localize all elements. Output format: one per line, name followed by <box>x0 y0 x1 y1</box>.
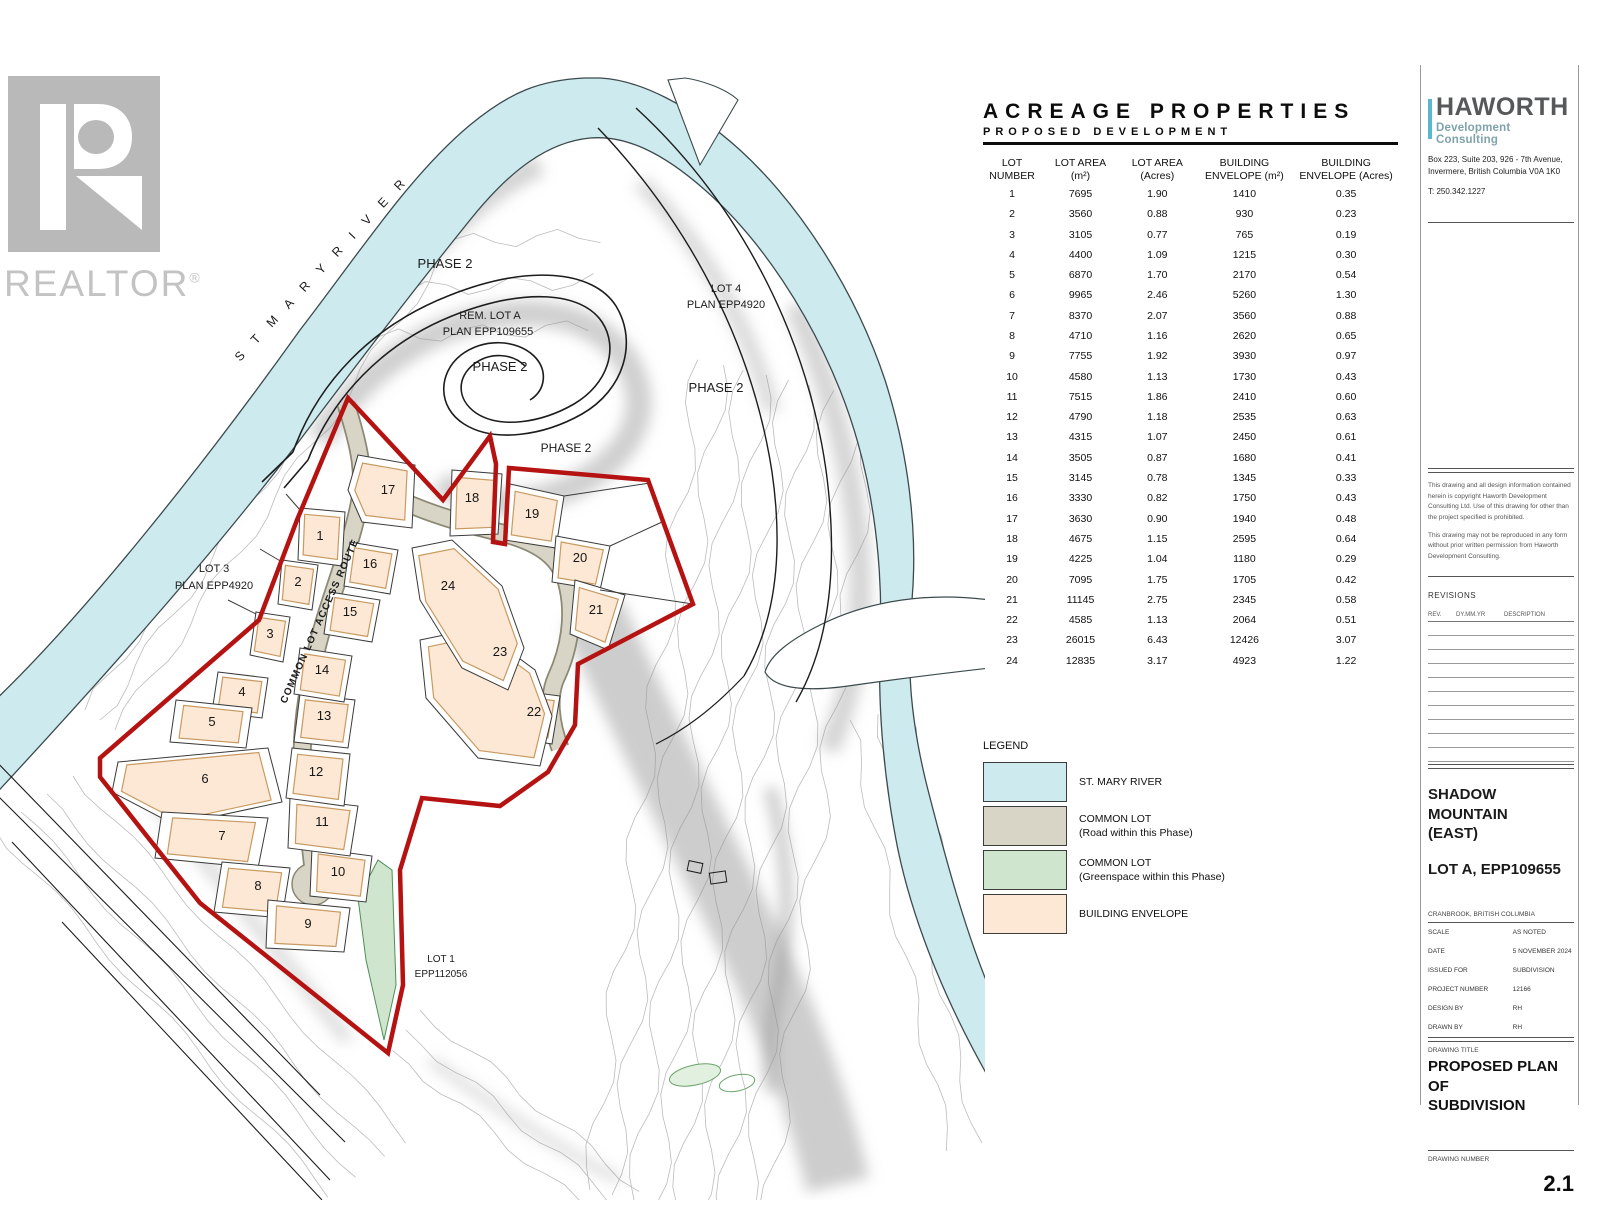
lot-number-label: 4 <box>238 684 245 699</box>
lot-table-row: 847101.1626200.65 <box>983 326 1398 346</box>
lot-table-cell: 1730 <box>1195 366 1295 386</box>
lot-table-body: 176951.9014100.35235600.889300.23331050.… <box>983 184 1398 671</box>
lot-table-cell: 1215 <box>1195 245 1295 265</box>
lot-table-cell: 2.46 <box>1120 285 1195 305</box>
lot-table-cell: 9 <box>983 346 1041 366</box>
lot-table-cell: 5 <box>983 265 1041 285</box>
revision-blank-row <box>1428 650 1574 664</box>
lot-table-cell: 4315 <box>1041 427 1120 447</box>
lot-table-cell: 2 <box>983 204 1041 224</box>
revision-blank-row <box>1428 734 1574 748</box>
revision-blank-row <box>1428 636 1574 650</box>
lot-number-label: 1 <box>316 528 323 543</box>
drawing-title: PROPOSED PLAN OF SUBDIVISION <box>1428 1057 1574 1116</box>
legend-item: BUILDING ENVELOPE <box>983 894 1243 934</box>
lot-table-row: 568701.7021700.54 <box>983 265 1398 285</box>
lot-table-cell: 21 <box>983 590 1041 610</box>
firm-name: HAWORTH <box>1436 95 1574 120</box>
map-label: LOT 1 <box>427 954 455 965</box>
legend-swatch <box>983 806 1067 846</box>
column-header: LOT AREA(Acres) <box>1120 157 1195 184</box>
map-label: EPP112056 <box>415 969 468 980</box>
lot-table-cell: 1.07 <box>1120 427 1195 447</box>
lot-table-cell: 2410 <box>1195 387 1295 407</box>
lot-table-cell: 8 <box>983 326 1041 346</box>
lot-table-cell: 1.18 <box>1120 407 1195 427</box>
lot-table-cell: 3145 <box>1041 468 1120 488</box>
haworth-teal-bar <box>1428 99 1432 139</box>
lot-table-cell: 0.97 <box>1294 346 1398 366</box>
lot-table-cell: 4923 <box>1195 651 1295 671</box>
section-divider <box>1428 468 1574 473</box>
lot-table-cell: 3630 <box>1041 509 1120 529</box>
info-field-row: PROJECT NUMBER12166 <box>1428 980 1574 999</box>
lot-number-label: 13 <box>317 708 331 723</box>
legend-swatch <box>983 850 1067 890</box>
realtor-label: REALTOR® <box>4 263 192 305</box>
lot-table-cell: 1.13 <box>1120 610 1195 630</box>
lot-table-cell: 1940 <box>1195 509 1295 529</box>
legend-item: COMMON LOT(Greenspace within this Phase) <box>983 850 1243 890</box>
lot-table-cell: 2620 <box>1195 326 1295 346</box>
lot-table-cell: 4400 <box>1041 245 1120 265</box>
lot-table-cell: 7695 <box>1041 184 1120 204</box>
lot-table-cell: 0.23 <box>1294 204 1398 224</box>
legend-label: ST. MARY RIVER <box>1079 775 1162 789</box>
lot-table-cell: 0.48 <box>1294 509 1398 529</box>
revision-blank-row <box>1428 678 1574 692</box>
lot-table-cell: 0.61 <box>1294 427 1398 447</box>
lot-table-cell: 0.77 <box>1120 224 1195 244</box>
lot-number-label: 19 <box>525 506 539 521</box>
lot-table-cell: 1.86 <box>1120 387 1195 407</box>
copyright-note-2: This drawing may not be reproduced in an… <box>1428 531 1574 562</box>
lot-number-label: 16 <box>363 556 377 571</box>
legend-item: COMMON LOT(Road within this Phase) <box>983 806 1243 846</box>
lot-table-cell: 0.30 <box>1294 245 1398 265</box>
lot-table-cell: 1.15 <box>1120 529 1195 549</box>
lot-number-label: 17 <box>381 482 395 497</box>
lot-table-row: 1942251.0411800.29 <box>983 549 1398 569</box>
firm-phone: T: 250.342.1227 <box>1428 187 1574 196</box>
revision-blank-row <box>1428 664 1574 678</box>
drawing-title-label: DRAWING TITLE <box>1428 1047 1574 1054</box>
lot-table-cell: 0.19 <box>1294 224 1398 244</box>
realtor-r-logo <box>2 62 172 258</box>
lot-table-cell: 0.42 <box>1294 569 1398 589</box>
lot-table-row: 1045801.1317300.43 <box>983 366 1398 386</box>
lot-table-cell: 19 <box>983 549 1041 569</box>
lot-table-cell: 2.07 <box>1120 306 1195 326</box>
lot-number-label: 11 <box>315 814 329 829</box>
lot-table-cell: 3505 <box>1041 448 1120 468</box>
lot-table-cell: 8370 <box>1041 306 1120 326</box>
info-field-row: DRAWN BYRH <box>1428 1018 1574 1037</box>
lot-table-row: 783702.0735600.88 <box>983 306 1398 326</box>
legend-item: ST. MARY RIVER <box>983 762 1243 802</box>
lot-table-cell: 1.75 <box>1120 569 1195 589</box>
lot-table-cell: 0.35 <box>1294 184 1398 204</box>
lot-table-row: 1736300.9019400.48 <box>983 509 1398 529</box>
revision-blank-row <box>1428 706 1574 720</box>
legend-label: COMMON LOT(Greenspace within this Phase) <box>1079 856 1225 884</box>
lot-table-cell: 10 <box>983 366 1041 386</box>
lot-table-cell: 7755 <box>1041 346 1120 366</box>
lot-table-cell: 4675 <box>1041 529 1120 549</box>
lot-table-cell: 0.51 <box>1294 610 1398 630</box>
firm-address-line2: Invermere, British Columbia V0A 1K0 <box>1428 166 1574 177</box>
lot-number-label: 6 <box>201 771 208 786</box>
project-location: CRANBROOK, BRITISH COLUMBIA <box>1428 911 1574 918</box>
lot-table-cell: 17 <box>983 509 1041 529</box>
lot-table-cell: 22 <box>983 610 1041 630</box>
lot-number-label: 2 <box>294 574 301 589</box>
lot-table-row: 235600.889300.23 <box>983 204 1398 224</box>
map-label: PLAN EPP4920 <box>687 299 765 311</box>
lot-table-cell: 1.92 <box>1120 346 1195 366</box>
revision-blank-row <box>1428 692 1574 706</box>
lot-table-row: 1343151.0724500.61 <box>983 427 1398 447</box>
lot-table-cell: 0.43 <box>1294 366 1398 386</box>
info-field-row: DATE5 NOVEMBER 2024 <box>1428 942 1574 961</box>
title-block: HAWORTH Development Consulting Box 223, … <box>1428 95 1574 1197</box>
subdivision-plan-sheet: { "watermark": { "realtor": "REALTOR", "… <box>0 0 1600 1200</box>
legend-items: ST. MARY RIVERCOMMON LOT(Road within thi… <box>983 762 1243 934</box>
lot-table-cell: 15 <box>983 468 1041 488</box>
lot-table-row: 1531450.7813450.33 <box>983 468 1398 488</box>
section-divider <box>1428 764 1574 769</box>
legend: LEGEND ST. MARY RIVERCOMMON LOT(Road wit… <box>983 740 1243 938</box>
firm-subtitle: Development Consulting <box>1436 122 1574 146</box>
lot-table-row: 1633300.8217500.43 <box>983 488 1398 508</box>
lot-number-label: 9 <box>304 916 311 931</box>
lot-table-cell: 4585 <box>1041 610 1120 630</box>
lot-table-cell: 1750 <box>1195 488 1295 508</box>
lot-table-cell: 0.90 <box>1120 509 1195 529</box>
lot-table-cell: 7 <box>983 306 1041 326</box>
revision-blank-row <box>1428 720 1574 734</box>
lot-table-cell: 0.41 <box>1294 448 1398 468</box>
lot-number-label: 18 <box>465 490 479 505</box>
lot-table-cell: 9965 <box>1041 285 1120 305</box>
lot-table-cell: 2450 <box>1195 427 1295 447</box>
legend-swatch <box>983 762 1067 802</box>
drawing-number: 2.1 <box>1428 1171 1574 1197</box>
revisions-blank-rows <box>1428 622 1574 762</box>
lot-table-cell: 14 <box>983 448 1041 468</box>
map-label: PHASE 2 <box>473 359 528 374</box>
lot-table-cell: 3560 <box>1041 204 1120 224</box>
lot-table-cell: 0.43 <box>1294 488 1398 508</box>
revisions-header: REV.DY.MM.YRDESCRIPTION <box>1428 612 1574 622</box>
lot-table-cell: 2595 <box>1195 529 1295 549</box>
map-label: PLAN EPP4920 <box>175 580 253 592</box>
firm-address-line1: Box 223, Suite 203, 926 - 7th Avenue, <box>1428 154 1574 165</box>
map-label: PHASE 2 <box>689 380 744 395</box>
lot-table-cell: 0.88 <box>1294 306 1398 326</box>
lot-table-cell: 20 <box>983 569 1041 589</box>
revisions-title: REVISIONS <box>1428 591 1574 600</box>
title-block-left-border <box>1420 65 1421 1105</box>
lot-table-cell: 1.22 <box>1294 651 1398 671</box>
lot-table-cell: 1705 <box>1195 569 1295 589</box>
haworth-logo: HAWORTH Development Consulting <box>1428 95 1574 146</box>
lot-table-row: 444001.0912150.30 <box>983 245 1398 265</box>
lot-table-cell: 1.16 <box>1120 326 1195 346</box>
lot-table-row: 1435050.8716800.41 <box>983 448 1398 468</box>
lot-table-cell: 5260 <box>1195 285 1295 305</box>
lot-table-row: 23260156.43124263.07 <box>983 630 1398 650</box>
lot-number-label: 14 <box>315 662 329 677</box>
lot-table-cell: 0.29 <box>1294 549 1398 569</box>
lot-table-cell: 1.04 <box>1120 549 1195 569</box>
lot-table-cell: 3.17 <box>1120 651 1195 671</box>
lot-table-cell: 11145 <box>1041 590 1120 610</box>
lot-number-label: 10 <box>331 864 345 879</box>
lot-table-cell: 1 <box>983 184 1041 204</box>
lot-table-cell: 765 <box>1195 224 1295 244</box>
lot-table-cell: 3 <box>983 224 1041 244</box>
lot-table-cell: 6.43 <box>1120 630 1195 650</box>
map-label: LOT 3 <box>199 563 229 575</box>
lot-table-row: 1846751.1525950.64 <box>983 529 1398 549</box>
drawing-number-label: DRAWING NUMBER <box>1428 1156 1574 1163</box>
lot-number-label: 15 <box>343 604 357 619</box>
lot-table-cell: 7095 <box>1041 569 1120 589</box>
sheet-right-border <box>1578 65 1579 1105</box>
lot-number-label: 21 <box>589 602 603 617</box>
lot-table-cell: 12426 <box>1195 630 1295 650</box>
revision-blank-row <box>1428 622 1574 636</box>
map-label: LOT 4 <box>711 283 741 295</box>
acreage-properties-panel: ACREAGE PROPERTIES PROPOSED DEVELOPMENT … <box>983 100 1398 671</box>
panel-subtitle: PROPOSED DEVELOPMENT <box>983 126 1398 138</box>
lot-table-cell: 0.87 <box>1120 448 1195 468</box>
lot-table-cell: 0.88 <box>1120 204 1195 224</box>
lot-table: LOTNUMBERLOT AREA(m²)LOT AREA(Acres)BUIL… <box>983 157 1398 671</box>
lot-table-cell: 1.90 <box>1120 184 1195 204</box>
map-label: PHASE 2 <box>541 441 592 455</box>
lot-number-label: 23 <box>493 644 507 659</box>
lot-number-label: 24 <box>441 578 455 593</box>
column-header: LOT AREA(m²) <box>1041 157 1120 184</box>
lot-table-cell: 11 <box>983 387 1041 407</box>
lot-table-cell: 0.78 <box>1120 468 1195 488</box>
map-label: REM. LOT A <box>459 310 521 322</box>
lot-table-cell: 0.65 <box>1294 326 1398 346</box>
lot-table-row: 176951.9014100.35 <box>983 184 1398 204</box>
lot-table-cell: 1.09 <box>1120 245 1195 265</box>
project-lot: LOT A, EPP109655 <box>1428 860 1574 880</box>
lot-table-cell: 0.54 <box>1294 265 1398 285</box>
lot-table-cell: 4 <box>983 245 1041 265</box>
lot-table-cell: 26015 <box>1041 630 1120 650</box>
map-label: PHASE 2 <box>418 256 473 271</box>
lot-table-row: 699652.4652601.30 <box>983 285 1398 305</box>
lot-table-cell: 0.33 <box>1294 468 1398 488</box>
lot-table-cell: 2064 <box>1195 610 1295 630</box>
revision-blank-row <box>1428 748 1574 762</box>
lot-table-cell: 0.60 <box>1294 387 1398 407</box>
lot-table-cell: 16 <box>983 488 1041 508</box>
column-header: LOTNUMBER <box>983 157 1041 184</box>
section-divider <box>1428 1037 1574 1042</box>
map-label: PLAN EPP109655 <box>443 326 534 338</box>
lot-table-cell: 18 <box>983 529 1041 549</box>
project-name: SHADOW MOUNTAIN (EAST) <box>1428 785 1574 844</box>
lot-number-label: 12 <box>309 764 323 779</box>
lot-table-cell: 6870 <box>1041 265 1120 285</box>
lot-table-cell: 1.30 <box>1294 285 1398 305</box>
lot-table-row: 977551.9239300.97 <box>983 346 1398 366</box>
lot-table-cell: 4225 <box>1041 549 1120 569</box>
info-field-row: ISSUED FORSUBDIVISION <box>1428 961 1574 980</box>
lot-table-row: 331050.777650.19 <box>983 224 1398 244</box>
lot-table-cell: 2345 <box>1195 590 1295 610</box>
lot-table-cell: 2170 <box>1195 265 1295 285</box>
panel-title: ACREAGE PROPERTIES <box>983 100 1398 124</box>
legend-swatch <box>983 894 1067 934</box>
lot-table-row: 24128353.1749231.22 <box>983 651 1398 671</box>
lot-table-cell: 1680 <box>1195 448 1295 468</box>
lot-table-row: 2070951.7517050.42 <box>983 569 1398 589</box>
lot-number-label: 5 <box>208 714 215 729</box>
lot-table-row: 21111452.7523450.58 <box>983 590 1398 610</box>
lot-table-cell: 12 <box>983 407 1041 427</box>
drawing-info-fields: SCALEAS NOTEDDATE5 NOVEMBER 2024ISSUED F… <box>1428 923 1574 1037</box>
lot-table-cell: 3330 <box>1041 488 1120 508</box>
copyright-note-1: This drawing and all design information … <box>1428 481 1574 523</box>
lot-table-cell: 0.58 <box>1294 590 1398 610</box>
lot-number-label: 22 <box>527 704 541 719</box>
lot-table-cell: 2.75 <box>1120 590 1195 610</box>
lot-number-label: 8 <box>254 878 261 893</box>
lot-table-cell: 4790 <box>1041 407 1120 427</box>
legend-label: COMMON LOT(Road within this Phase) <box>1079 812 1193 840</box>
lot-number-label: 3 <box>266 626 273 641</box>
lot-table-cell: 0.64 <box>1294 529 1398 549</box>
lot-table-cell: 930 <box>1195 204 1295 224</box>
lot-table-cell: 1.13 <box>1120 366 1195 386</box>
lot-table-cell: 0.82 <box>1120 488 1195 508</box>
lot-table-cell: 24 <box>983 651 1041 671</box>
lot-table-cell: 13 <box>983 427 1041 447</box>
lot-table-cell: 23 <box>983 630 1041 650</box>
legend-title: LEGEND <box>983 740 1243 752</box>
info-field-row: DESIGN BYRH <box>1428 999 1574 1018</box>
info-field-row: SCALEAS NOTED <box>1428 923 1574 942</box>
lot-table-cell: 1180 <box>1195 549 1295 569</box>
lot-table-cell: 3.07 <box>1294 630 1398 650</box>
lot-table-cell: 4710 <box>1041 326 1120 346</box>
lot-table-cell: 0.63 <box>1294 407 1398 427</box>
lot-table-cell: 4580 <box>1041 366 1120 386</box>
lot-table-cell: 2535 <box>1195 407 1295 427</box>
lot-table-cell: 6 <box>983 285 1041 305</box>
lot-table-row: 2245851.1320640.51 <box>983 610 1398 630</box>
column-header: BUILDINGENVELOPE (Acres) <box>1294 157 1398 184</box>
lot-table-cell: 3560 <box>1195 306 1295 326</box>
lot-table-cell: 1410 <box>1195 184 1295 204</box>
lot-table-cell: 1.70 <box>1120 265 1195 285</box>
lot-table-cell: 1345 <box>1195 468 1295 488</box>
lot-table-cell: 3105 <box>1041 224 1120 244</box>
legend-label: BUILDING ENVELOPE <box>1079 907 1188 921</box>
realtor-watermark: REALTOR® <box>2 62 192 305</box>
title-rule <box>983 142 1398 145</box>
lot-table-row: 1175151.8624100.60 <box>983 387 1398 407</box>
lot-table-cell: 3930 <box>1195 346 1295 366</box>
column-header: BUILDINGENVELOPE (m²) <box>1195 157 1295 184</box>
building-envelope <box>167 818 255 862</box>
lot-table-cell: 7515 <box>1041 387 1120 407</box>
lot-table-row: 1247901.1825350.63 <box>983 407 1398 427</box>
lot-number-label: 20 <box>573 550 587 565</box>
lot-number-label: 7 <box>218 828 225 843</box>
lot-table-cell: 12835 <box>1041 651 1120 671</box>
lot-table-header: LOTNUMBERLOT AREA(m²)LOT AREA(Acres)BUIL… <box>983 157 1398 184</box>
